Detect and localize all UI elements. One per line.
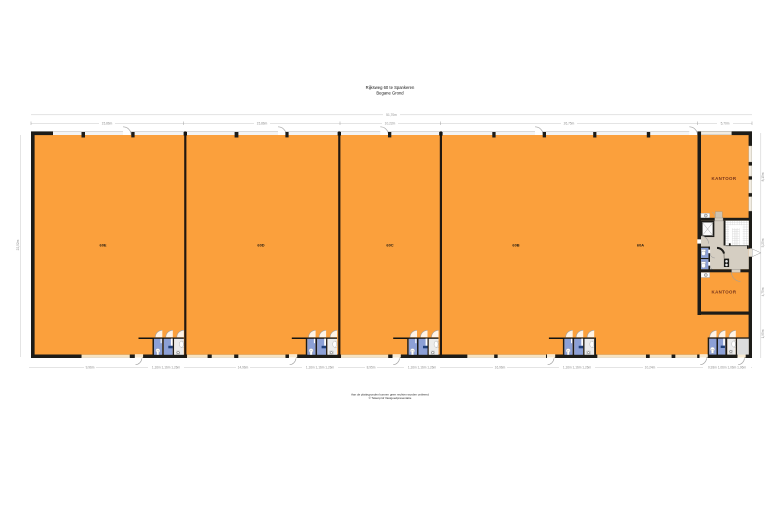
svg-text:4,75m: 4,75m	[761, 287, 765, 296]
svg-text:KANTOOR: KANTOOR	[712, 290, 737, 295]
svg-text:60B: 60B	[512, 242, 519, 247]
svg-text:5,70m: 5,70m	[721, 122, 730, 126]
svg-text:26,75m: 26,75m	[564, 122, 575, 126]
svg-text:60A: 60A	[637, 242, 644, 247]
svg-text:8,95m: 8,95m	[367, 365, 376, 369]
svg-text:15,86m: 15,86m	[102, 122, 113, 126]
svg-text:1,16m 1,16m 1,26m: 1,16m 1,16m 1,26m	[306, 365, 335, 369]
svg-text:51,70m: 51,70m	[386, 113, 397, 117]
svg-text:15,86m: 15,86m	[257, 122, 268, 126]
svg-text:KANTOOR: KANTOOR	[712, 176, 737, 181]
svg-text:10,22m: 10,22m	[385, 122, 396, 126]
svg-text:22,52m: 22,52m	[16, 239, 20, 250]
svg-text:1,16m 1,16m 1,26m: 1,16m 1,16m 1,26m	[408, 365, 437, 369]
svg-text:14,96m: 14,96m	[238, 365, 249, 369]
svg-text:8,15m: 8,15m	[761, 172, 765, 181]
svg-text:1,16m 1,16m 1,26m: 1,16m 1,16m 1,26m	[563, 365, 592, 369]
svg-text:9,96m: 9,96m	[86, 365, 95, 369]
svg-text:1,16m 1,16m 1,26m: 1,16m 1,16m 1,26m	[152, 365, 181, 369]
svg-text:Begane Grond: Begane Grond	[376, 90, 404, 95]
svg-text:5,25m: 5,25m	[761, 238, 765, 247]
svg-text:Rijksweg 60 te Spankeren: Rijksweg 60 te Spankeren	[366, 85, 415, 90]
svg-text:0,93m 1,06m 1,06m 1,06m: 0,93m 1,06m 1,06m 1,06m	[708, 365, 746, 369]
svg-text:60E: 60E	[100, 242, 107, 247]
svg-text:© Tekenprof Vastgoedpresentati: © Tekenprof Vastgoedpresentatie	[369, 396, 412, 400]
svg-text:60D: 60D	[257, 242, 264, 247]
svg-text:1,95m: 1,95m	[761, 329, 765, 338]
svg-text:60C: 60C	[386, 242, 393, 247]
svg-text:16,96m: 16,96m	[495, 365, 506, 369]
svg-text:10,24m: 10,24m	[645, 365, 656, 369]
